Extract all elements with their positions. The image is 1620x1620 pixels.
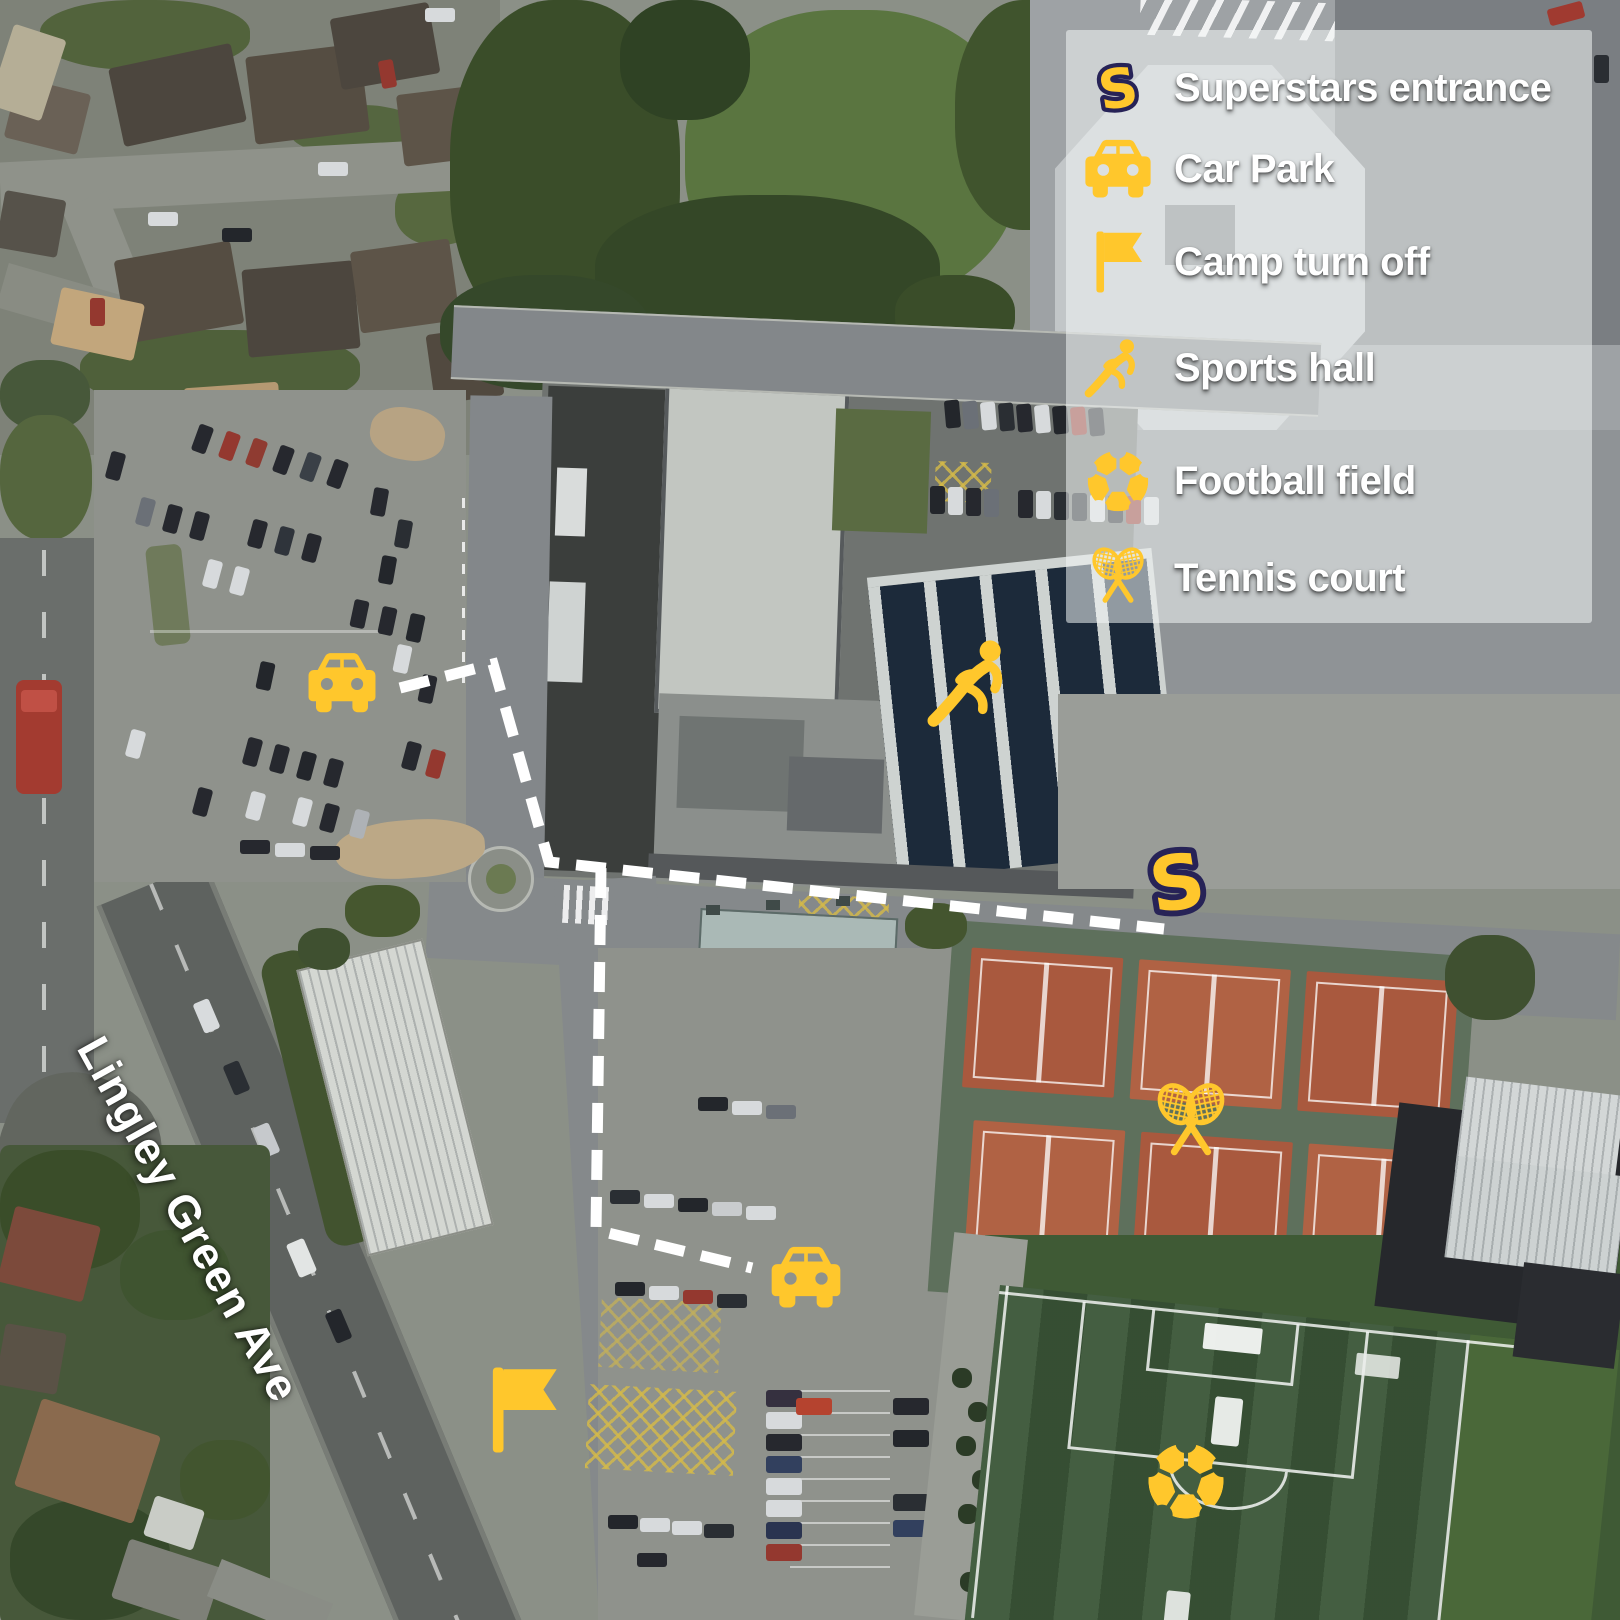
legend-row-tennis-court: Tennis court: [1080, 544, 1405, 612]
legend-row-sports-hall: Sports hall: [1080, 334, 1375, 402]
tennis-court: [1297, 971, 1458, 1121]
roof-unit: [546, 581, 585, 682]
hatched-bays: [598, 1297, 721, 1373]
parked-car: [242, 737, 264, 768]
parked-car: [292, 797, 314, 828]
parked-car: [893, 1430, 929, 1447]
parked-car: [644, 1194, 674, 1208]
parked-car: [370, 487, 390, 517]
parked-car: [105, 451, 127, 482]
house: [0, 1323, 67, 1395]
hatched-bays: [585, 1384, 737, 1476]
parked-car: [796, 1398, 832, 1415]
parked-car: [766, 1522, 802, 1539]
parked-car: [275, 843, 305, 857]
parked-car: [766, 1478, 802, 1495]
bus: [16, 680, 62, 794]
parked-car: [245, 437, 269, 468]
parked-car: [766, 1544, 802, 1561]
parked-car: [189, 511, 211, 542]
legend-row-football-field: Football field: [1080, 447, 1416, 515]
parked-car: [192, 787, 214, 818]
bay-lines: [790, 1390, 890, 1575]
parked-car: [766, 1456, 802, 1473]
dark-roof: [1513, 1262, 1620, 1369]
autumn-trees: [366, 402, 449, 466]
parked-car: [610, 1190, 640, 1204]
car-park-north: [94, 390, 466, 882]
bush: [345, 885, 420, 937]
camp-turn-off-marker: [484, 1362, 562, 1458]
parked-car: [893, 1398, 929, 1415]
campus-road-west: [462, 395, 553, 901]
parked-car: [678, 1198, 708, 1212]
parked-car: [672, 1521, 702, 1535]
parked-car: [125, 729, 147, 760]
roundabout-centre: [486, 864, 516, 894]
trees: [620, 0, 750, 120]
legend-row-car-park: Car Park: [1080, 135, 1335, 203]
parked-car: [310, 846, 340, 860]
legend-panel: Superstars entrance Car Park Camp turn o…: [1066, 30, 1592, 623]
trees: [1445, 935, 1535, 1020]
main-road-west: [0, 538, 94, 1123]
parked-car: [980, 401, 997, 430]
parked-car: [984, 489, 999, 517]
legend-label: Camp turn off: [1174, 240, 1430, 285]
bush: [952, 1368, 972, 1388]
parked-car: [698, 1097, 728, 1111]
parked-car: [766, 1105, 796, 1119]
road-centre-line: [42, 550, 46, 1110]
legend-label: Football field: [1174, 459, 1416, 504]
parked-car: [401, 741, 423, 772]
superstars-s-icon: [1080, 55, 1156, 121]
chimney: [836, 896, 850, 906]
chimney: [706, 905, 720, 915]
legend-row-camp-turn-off: Camp turn off: [1080, 228, 1430, 296]
parked-car: [1036, 491, 1051, 519]
parked-car: [944, 399, 961, 428]
bus-roof: [21, 690, 57, 712]
parked-car: [732, 1101, 762, 1115]
roof-unit: [555, 467, 587, 536]
car-icon: [1080, 136, 1156, 202]
parked-car: [649, 1286, 679, 1300]
parked-car: [222, 228, 252, 242]
tennis-court: [962, 948, 1123, 1098]
parked-car: [425, 8, 455, 22]
residential-area: [0, 0, 500, 455]
parked-car: [683, 1290, 713, 1304]
house: [241, 260, 360, 357]
aerial-map: Superstars entrance Car Park Camp turn o…: [0, 0, 1620, 1620]
parked-car: [766, 1434, 802, 1451]
bay-line: [150, 630, 380, 633]
roof-plant: [787, 756, 885, 833]
runner-icon: [1080, 335, 1156, 401]
parked-car: [90, 298, 105, 326]
parked-car: [998, 402, 1015, 431]
parked-car: [274, 526, 296, 557]
bay-line: [462, 498, 465, 683]
parked-car: [417, 674, 437, 705]
parked-car: [245, 791, 267, 822]
parked-car: [148, 212, 178, 226]
parked-car: [948, 487, 963, 515]
parked-car: [377, 606, 397, 637]
parked-car: [296, 751, 318, 782]
court-lines: [973, 958, 1113, 1087]
parked-car: [318, 162, 348, 176]
tennis-court: [1130, 959, 1291, 1109]
parked-car: [240, 840, 270, 854]
legend-label: Superstars entrance: [1174, 66, 1551, 111]
legend-label: Tennis court: [1174, 556, 1405, 601]
pavement: [1058, 694, 1620, 889]
parked-car: [615, 1282, 645, 1296]
parked-car: [746, 1206, 776, 1220]
flag-icon: [1080, 229, 1156, 295]
bush: [905, 903, 967, 949]
goal-frame: [1355, 1353, 1401, 1379]
parked-car: [255, 661, 275, 692]
tennis-rackets-icon: [1080, 545, 1156, 611]
zebra-crossing: [562, 885, 610, 925]
parked-car: [326, 458, 350, 489]
parked-car: [299, 451, 323, 482]
parked-car: [135, 497, 157, 528]
football-icon: [1080, 448, 1156, 514]
bush: [298, 928, 350, 970]
legend-label: Car Park: [1174, 147, 1335, 192]
parked-car: [349, 599, 369, 630]
parked-car: [247, 519, 269, 550]
court-lines: [1140, 970, 1280, 1099]
parked-car: [1034, 404, 1051, 433]
parked-car: [640, 1518, 670, 1532]
parked-car: [717, 1294, 747, 1308]
parked-car: [202, 559, 224, 590]
legend-label: Sports hall: [1174, 346, 1375, 391]
court-lines: [1308, 982, 1448, 1111]
parked-car: [319, 803, 341, 834]
green-roof: [832, 408, 931, 533]
legend-row-superstars-entrance: Superstars entrance: [1080, 54, 1551, 122]
parked-car: [405, 613, 425, 644]
parked-car: [608, 1515, 638, 1529]
parked-car: [766, 1500, 802, 1517]
parked-car: [269, 744, 291, 775]
parked-car: [893, 1494, 929, 1511]
parked-car: [1016, 403, 1033, 432]
parked-car: [378, 555, 398, 585]
parked-car: [394, 519, 414, 549]
parked-car: [712, 1202, 742, 1216]
parked-car: [162, 504, 184, 535]
verge: [0, 415, 92, 540]
parked-car: [425, 749, 447, 780]
equipment: [1211, 1396, 1244, 1447]
parked-car: [323, 758, 345, 789]
parked-car: [637, 1553, 667, 1567]
parked-car: [962, 400, 979, 429]
parked-car: [218, 430, 242, 461]
chimney: [766, 900, 780, 910]
school-main-roof: [654, 369, 850, 719]
parked-car: [301, 533, 323, 564]
parked-car: [229, 566, 251, 597]
parked-car: [930, 486, 945, 514]
parked-car: [704, 1524, 734, 1538]
parked-car: [966, 488, 981, 516]
equipment: [1163, 1590, 1191, 1620]
house: [0, 190, 67, 258]
roof-plant: [676, 716, 804, 812]
parked-car: [1018, 490, 1033, 518]
corrugated-roof: [1444, 1156, 1620, 1278]
parked-car: [272, 444, 296, 475]
parked-car: [1594, 55, 1609, 83]
parked-car: [392, 644, 412, 675]
parked-car: [191, 423, 215, 454]
bush: [956, 1436, 976, 1456]
